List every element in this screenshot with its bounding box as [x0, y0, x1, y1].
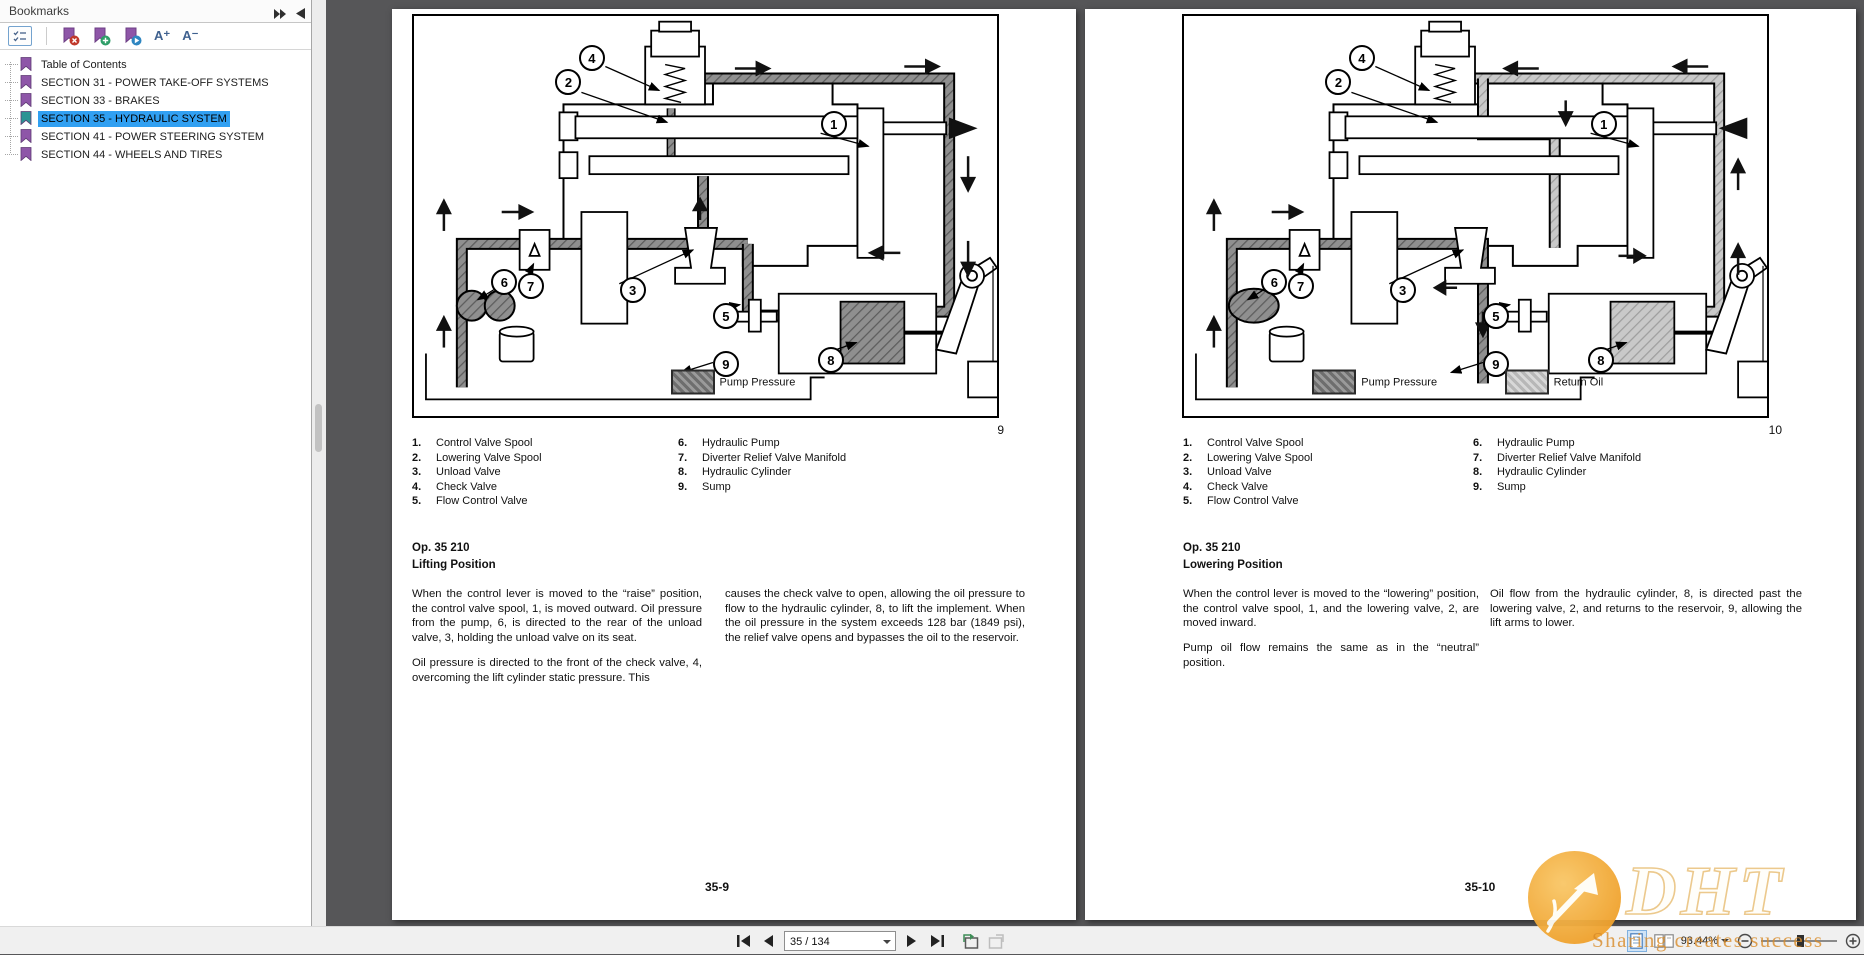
callout-number: 7 [518, 273, 544, 299]
part-item: 7.Diverter Relief Valve Manifold [1473, 451, 1641, 466]
previous-page-button[interactable] [759, 931, 777, 951]
bookmark-item[interactable]: Table of Contents [0, 55, 311, 73]
body-text-col2: Oil flow from the hydraulic cylinder, 8,… [1490, 587, 1802, 631]
part-label: Unload Valve [436, 465, 501, 480]
callout-number: 4 [1349, 45, 1375, 71]
body-text-col2: causes the check valve to open, allowing… [725, 587, 1025, 646]
op-number: Op. 35 210 [412, 540, 496, 557]
bookmark-item-label[interactable]: SECTION 31 - POWER TAKE-OFF SYSTEMS [38, 75, 272, 91]
callout-number: 7 [1288, 273, 1314, 299]
bookmark-item-label[interactable]: Table of Contents [38, 57, 130, 73]
callout-number: 3 [620, 277, 646, 303]
delete-bookmark-icon[interactable] [61, 27, 80, 46]
go-to-bookmark-icon[interactable] [123, 27, 142, 46]
part-label: Sump [702, 480, 731, 495]
zoom-slider-thumb[interactable] [1797, 935, 1804, 947]
splitter-scrollbar-thumb[interactable] [315, 404, 322, 452]
paragraph: causes the check valve to open, allowing… [725, 587, 1025, 646]
bookmark-flag-icon [20, 129, 32, 143]
bookmark-flag-icon [20, 57, 32, 71]
bookmark-item[interactable]: SECTION 35 - HYDRAULIC SYSTEM [0, 109, 311, 127]
part-item: 8.Hydraulic Cylinder [1473, 465, 1641, 480]
op-number: Op. 35 210 [1183, 540, 1283, 557]
page-number: 35-9 [402, 880, 1032, 894]
part-label: Flow Control Valve [1207, 494, 1299, 509]
part-item: 2.Lowering Valve Spool [1183, 451, 1313, 466]
part-item: 3.Unload Valve [412, 465, 542, 480]
op-title: Lifting Position [412, 557, 496, 574]
callout-number: 4 [579, 45, 605, 71]
bookmarks-panel: Bookmarks [0, 0, 312, 926]
pdf-page-left: 421673589 Pump Pressure 9 1.Control Valv… [392, 9, 1076, 920]
callout-number: 8 [818, 347, 844, 373]
op-title: Lowering Position [1183, 557, 1283, 574]
part-item: 9.Sump [678, 480, 846, 495]
next-view-button[interactable] [987, 931, 1005, 951]
hide-panel-arrow-icon[interactable] [296, 6, 305, 24]
bookmarks-toolbar: A⁺ A⁻ [0, 23, 311, 50]
previous-view-button[interactable] [961, 931, 979, 951]
callout-number: 1 [1591, 111, 1617, 137]
pdf-page-right: 421673589 Pump Pressure Return Oil 10 [1085, 9, 1856, 920]
page-number-box [784, 931, 896, 951]
part-item: 1.Control Valve Spool [1183, 436, 1313, 451]
bookmark-flag-icon [20, 111, 32, 125]
panel-splitter[interactable] [312, 0, 326, 926]
callout-number: 2 [555, 69, 581, 95]
part-label: Flow Control Valve [436, 494, 528, 509]
section-heading: Op. 35 210 Lowering Position [1183, 540, 1283, 574]
view-history-group [961, 931, 1005, 951]
page-number-input[interactable] [785, 933, 877, 951]
part-label: Sump [1497, 480, 1526, 495]
part-label: Diverter Relief Valve Manifold [702, 451, 846, 466]
bookmark-item-label[interactable]: SECTION 41 - POWER STEERING SYSTEM [38, 129, 267, 145]
paragraph: Oil flow from the hydraulic cylinder, 8,… [1490, 587, 1802, 631]
zoom-level-value: 93.44% [1681, 935, 1718, 947]
zoom-dropdown-caret-icon[interactable] [1721, 939, 1729, 943]
bookmark-flag-icon [20, 147, 32, 161]
part-item: 3.Unload Valve [1183, 465, 1313, 480]
callout-number: 3 [1390, 277, 1416, 303]
paragraph: Pump oil flow remains the same as in the… [1183, 641, 1479, 670]
part-label: Hydraulic Pump [702, 436, 780, 451]
document-view[interactable]: 421673589 Pump Pressure 9 1.Control Valv… [326, 0, 1864, 926]
diagram-graphic [1184, 16, 1767, 416]
collapse-panel-icon[interactable] [274, 6, 287, 24]
bookmark-item-label[interactable]: SECTION 35 - HYDRAULIC SYSTEM [38, 111, 230, 127]
legend-label: Return Oil [1554, 376, 1604, 388]
callout-number: 5 [1483, 303, 1509, 329]
bookmark-item[interactable]: SECTION 44 - WHEELS AND TIRES [0, 145, 311, 163]
part-label: Control Valve Spool [436, 436, 532, 451]
bookmark-item[interactable]: SECTION 33 - BRAKES [0, 91, 311, 109]
part-item: 2.Lowering Valve Spool [412, 451, 542, 466]
toolbar-separator [46, 27, 47, 45]
part-item: 9.Sump [1473, 480, 1641, 495]
part-label: Hydraulic Cylinder [1497, 465, 1586, 480]
part-item: 6.Hydraulic Pump [1473, 436, 1641, 451]
hydraulic-diagram-lifting: 421673589 Pump Pressure [412, 14, 999, 418]
page-navigation [734, 927, 1005, 955]
parts-list-col1: 1.Control Valve Spool2.Lowering Valve Sp… [1183, 436, 1313, 509]
parts-list-col1: 1.Control Valve Spool2.Lowering Valve Sp… [412, 436, 542, 509]
part-item: 5.Flow Control Valve [1183, 494, 1313, 509]
legend-swatch [671, 370, 715, 395]
body-text-col1: When the control lever is moved to the “… [1183, 587, 1479, 671]
bookmarks-panel-title: Bookmarks [9, 4, 69, 18]
part-item: 4.Check Valve [1183, 480, 1313, 495]
first-page-button[interactable] [734, 931, 752, 951]
legend-label: Pump Pressure [1361, 376, 1437, 388]
figure-number: 9 [412, 423, 1004, 437]
bookmark-item-label[interactable]: SECTION 33 - BRAKES [38, 93, 163, 109]
page-number: 35-10 [1182, 880, 1778, 894]
parts-list-col2: 6.Hydraulic Pump7.Diverter Relief Valve … [678, 436, 846, 494]
callout-number: 6 [491, 269, 517, 295]
legend-label: Pump Pressure [720, 376, 796, 388]
part-label: Hydraulic Cylinder [702, 465, 791, 480]
zoom-level[interactable]: 93.44% [1681, 935, 1729, 947]
bookmark-flag-icon [20, 75, 32, 89]
part-item: 1.Control Valve Spool [412, 436, 542, 451]
single-page-view-button[interactable] [1627, 930, 1647, 952]
last-page-button[interactable] [928, 931, 946, 951]
decrease-font-icon[interactable]: A⁻ [182, 26, 198, 46]
part-label: Check Valve [1207, 480, 1268, 495]
bookmark-item[interactable]: SECTION 41 - POWER STEERING SYSTEM [0, 127, 311, 145]
figure-number: 10 [1182, 423, 1782, 437]
increase-font-icon[interactable]: A⁺ [154, 26, 170, 46]
bookmarks-panel-header: Bookmarks [0, 0, 311, 23]
part-item: 4.Check Valve [412, 480, 542, 495]
part-label: Check Valve [436, 480, 497, 495]
legend-swatch [1505, 370, 1549, 395]
zoom-out-button[interactable] [1736, 931, 1754, 951]
paragraph: Oil pressure is directed to the front of… [412, 656, 702, 685]
callout-number: 6 [1261, 269, 1287, 295]
hydraulic-diagram-lowering: 421673589 Pump Pressure Return Oil [1182, 14, 1769, 418]
paragraph: When the control lever is moved to the “… [1183, 587, 1479, 631]
section-heading: Op. 35 210 Lifting Position [412, 540, 496, 574]
part-label: Diverter Relief Valve Manifold [1497, 451, 1641, 466]
part-label: Hydraulic Pump [1497, 436, 1575, 451]
bookmark-item-label[interactable]: SECTION 44 - WHEELS AND TIRES [38, 147, 225, 163]
part-item: 5.Flow Control Valve [412, 494, 542, 509]
zoom-controls: 93.44% [1627, 927, 1862, 955]
part-label: Control Valve Spool [1207, 436, 1303, 451]
bookmark-flag-icon [20, 93, 32, 107]
callout-number: 1 [821, 111, 847, 137]
add-bookmark-icon[interactable] [92, 27, 111, 46]
part-label: Unload Valve [1207, 465, 1272, 480]
zoom-in-button[interactable] [1844, 931, 1862, 951]
legend-item: Pump Pressure [1312, 370, 1437, 395]
next-page-button[interactable] [903, 931, 921, 951]
legend-item: Return Oil [1505, 370, 1604, 395]
part-label: Lowering Valve Spool [1207, 451, 1313, 466]
part-item: 8.Hydraulic Cylinder [678, 465, 846, 480]
bookmark-item[interactable]: SECTION 31 - POWER TAKE-OFF SYSTEMS [0, 73, 311, 91]
status-bar: 93.44% [0, 926, 1864, 954]
part-label: Lowering Valve Spool [436, 451, 542, 466]
part-item: 7.Diverter Relief Valve Manifold [678, 451, 846, 466]
legend-item: Pump Pressure [671, 370, 796, 395]
callout-number: 5 [713, 303, 739, 329]
facing-pages-view-button[interactable] [1654, 930, 1674, 952]
body-text-col1: When the control lever is moved to the “… [412, 587, 702, 685]
diagram-graphic [414, 16, 997, 416]
callout-number: 2 [1325, 69, 1351, 95]
part-item: 6.Hydraulic Pump [678, 436, 846, 451]
legend-swatch [1312, 370, 1356, 395]
bookmark-list: Table of Contents SECTION 31 - POWER TAK… [0, 50, 311, 163]
parts-list-col2: 6.Hydraulic Pump7.Diverter Relief Valve … [1473, 436, 1641, 494]
zoom-slider[interactable] [1761, 934, 1837, 948]
paragraph: When the control lever is moved to the “… [412, 587, 702, 646]
page-dropdown-caret-icon[interactable] [883, 940, 891, 944]
bookmark-options-icon[interactable] [8, 26, 32, 46]
